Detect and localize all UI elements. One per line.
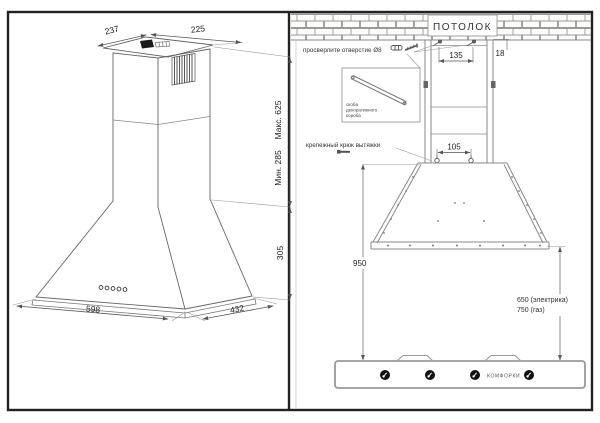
- diagram-canvas: 237 225 Макс. 625 Мин. 285 305 598: [0, 0, 600, 423]
- hook-label: крепежный крюк вытяжки: [306, 141, 381, 149]
- bracket-inset: скоба декоративного короба: [342, 68, 420, 122]
- dim-305-label: 305: [275, 246, 285, 260]
- dim-225-label: 225: [190, 23, 205, 34]
- outer-frame: [8, 12, 592, 410]
- dim-950-label: 950: [353, 259, 367, 268]
- dim-18-label: 18: [496, 49, 505, 58]
- knob: [470, 370, 480, 380]
- knob: [380, 370, 390, 380]
- duct-clip-right: [491, 81, 496, 88]
- knob: [524, 370, 534, 380]
- dim-135-label: 135: [449, 51, 463, 60]
- drill-hole-label: просверлите отверстие Ø8: [303, 47, 382, 54]
- dim-min-height-label: Мин. 285: [273, 150, 283, 186]
- dim-598-label: 598: [86, 303, 101, 314]
- knob: [425, 370, 435, 380]
- bracket-caption-line1: скоба: [346, 102, 358, 107]
- dim-max-height-label: Макс. 625: [273, 100, 283, 139]
- bracket-caption-line3: короба: [346, 113, 361, 118]
- installation-diagram-page: 237 225 Макс. 625 Мин. 285 305 598: [0, 0, 600, 423]
- clearance-electric-label: 650 (электрика): [517, 297, 568, 304]
- ceiling-label: ПОТОЛОК: [433, 22, 492, 33]
- exhaust-outlet: [140, 40, 154, 49]
- hob-label: КОМФОРКИ: [487, 374, 520, 380]
- ceiling-bricks: ПОТОЛОК: [291, 14, 591, 41]
- cooktop: КОМФОРКИ: [335, 356, 585, 389]
- clearance-gas-label: 750 (газ): [517, 307, 545, 314]
- duct-clip-left: [424, 81, 429, 88]
- dim-105-label: 105: [447, 143, 461, 152]
- bracket-caption-line2: декоративного: [346, 108, 378, 113]
